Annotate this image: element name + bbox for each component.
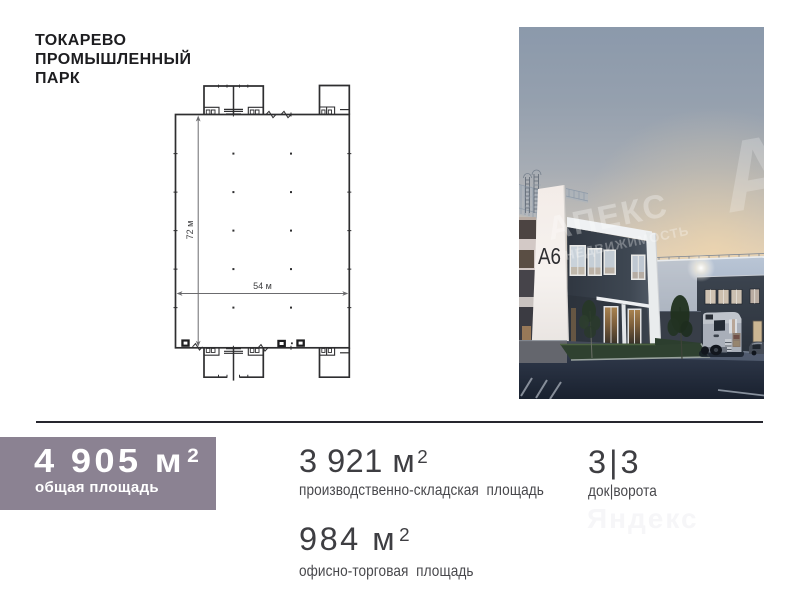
svg-text:А6: А6 — [538, 243, 561, 269]
svg-text:72 м: 72 м — [185, 221, 195, 240]
svg-text:54 м: 54 м — [253, 281, 272, 291]
